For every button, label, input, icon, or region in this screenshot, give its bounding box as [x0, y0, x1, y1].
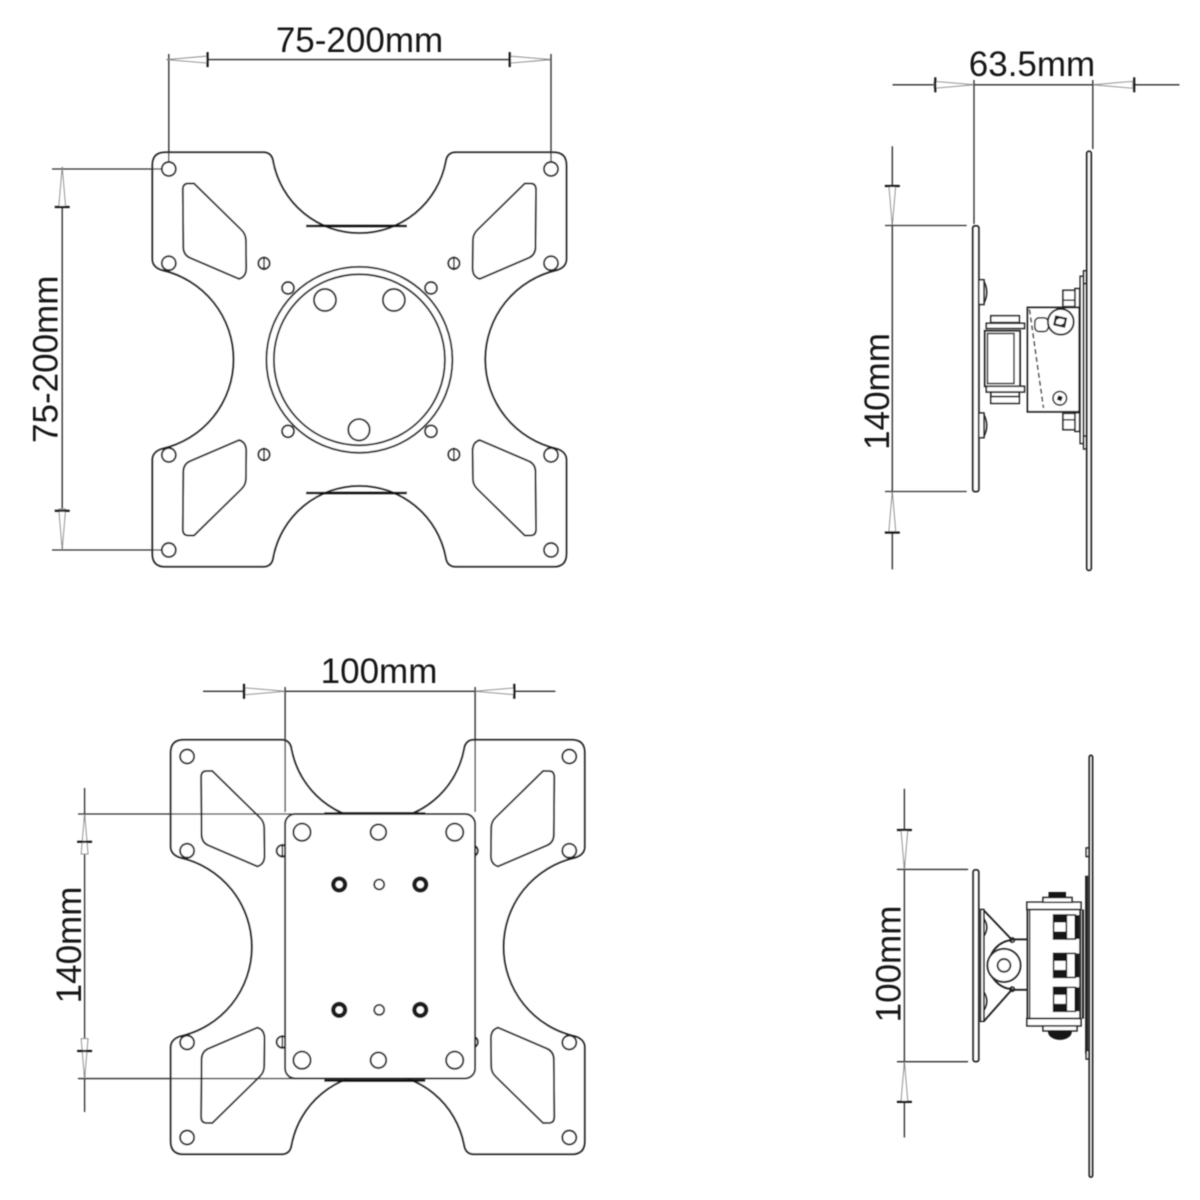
svg-text:75-200mm: 75-200mm	[27, 276, 66, 443]
svg-text:100mm: 100mm	[870, 906, 909, 1023]
svg-text:100mm: 100mm	[321, 652, 438, 691]
svg-text:63.5mm: 63.5mm	[969, 45, 1095, 84]
svg-text:140mm: 140mm	[858, 333, 897, 450]
svg-text:140mm: 140mm	[50, 887, 89, 1004]
svg-text:75-200mm: 75-200mm	[276, 21, 443, 60]
